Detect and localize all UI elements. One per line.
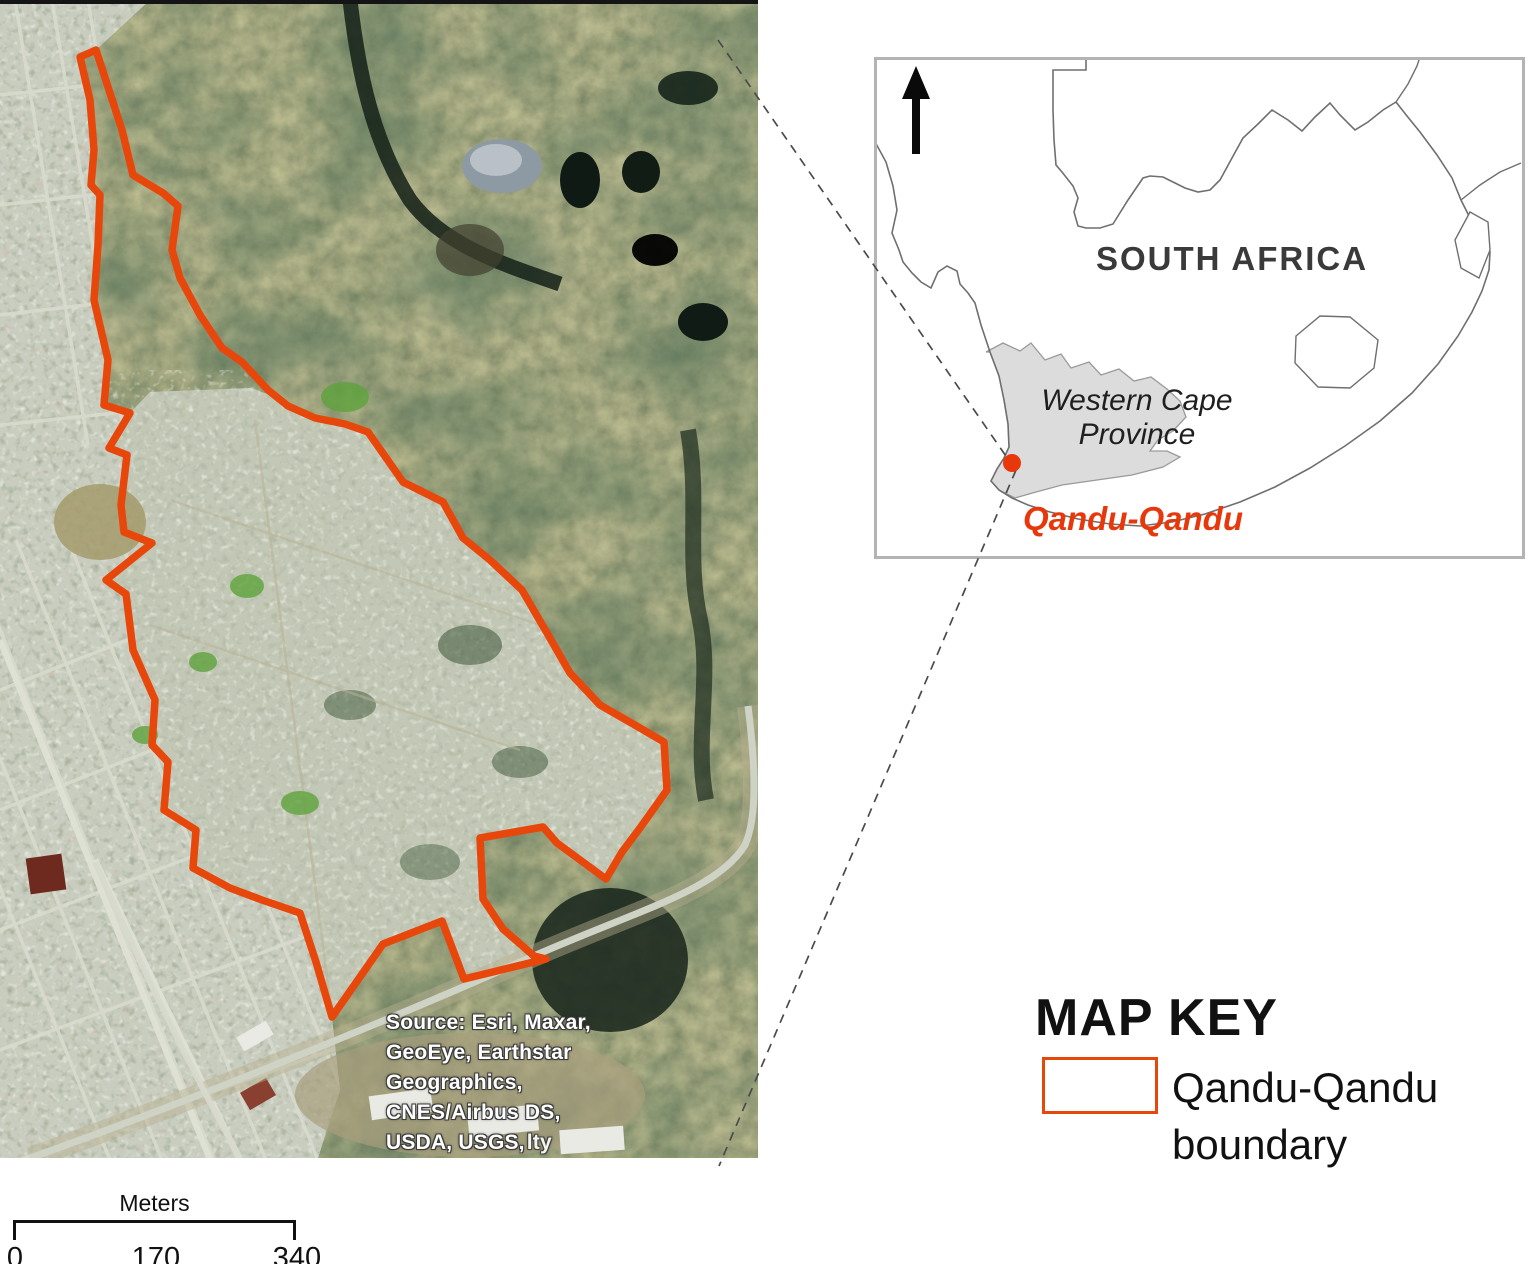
- pond-4: [678, 303, 728, 341]
- legend-row: Qandu-Qandu boundary: [1042, 1057, 1522, 1114]
- connector-line-bottom: [719, 470, 1016, 1166]
- source-line: Geographics,: [386, 1068, 626, 1098]
- source-line: USDA, USGS,lty: [386, 1128, 626, 1158]
- pond-3: [632, 234, 678, 266]
- red-roof-building: [26, 854, 67, 895]
- scale-tick-340: 340: [273, 1242, 321, 1264]
- source-line: CNES/Airbus DS,: [386, 1098, 626, 1128]
- lake-glint-highlight: [470, 144, 522, 176]
- brown-patch: [436, 224, 504, 276]
- scale-tick-0: 0: [7, 1242, 23, 1264]
- scale-bar-unit: Meters: [13, 1190, 296, 1217]
- north-arrow-icon: [902, 66, 930, 154]
- pond-2: [622, 151, 660, 193]
- source-attribution: Source: Esri, Maxar, GeoEye, Earthstar G…: [386, 1008, 626, 1158]
- sat-top-edge: [0, 0, 758, 4]
- pond-1: [560, 152, 600, 208]
- south-africa-map: SOUTH AFRICA Western Cape Province Qandu…: [877, 60, 1522, 556]
- figure-study-area-map: Source: Esri, Maxar, GeoEye, Earthstar G…: [0, 0, 1535, 1264]
- inset-locator-map: SOUTH AFRICA Western Cape Province Qandu…: [874, 57, 1525, 559]
- source-overlap-text: lty: [527, 1131, 552, 1154]
- province-label-line2: Province: [1079, 418, 1196, 451]
- satellite-image: [0, 0, 758, 1158]
- eswatini-shape: [1455, 212, 1490, 278]
- source-line: Source: Esri, Maxar,: [386, 1008, 626, 1038]
- boundary-legend-swatch: [1042, 1057, 1158, 1114]
- location-label: Qandu-Qandu: [1023, 500, 1243, 537]
- satellite-map: [0, 0, 758, 1158]
- province-label-line1: Western Cape: [1041, 384, 1232, 417]
- scale-bar-bracket: [13, 1220, 296, 1240]
- map-key-title: MAP KEY: [1035, 988, 1278, 1048]
- sand-field: [54, 484, 146, 560]
- south-africa-outline: [877, 60, 1490, 526]
- pond-5: [658, 71, 718, 105]
- source-line: GeoEye, Earthstar: [386, 1038, 626, 1068]
- scale-bar: Meters 0 170 340: [13, 1190, 296, 1264]
- boundary-legend-label: Qandu-Qandu boundary: [1172, 1059, 1522, 1116]
- neighbour-border-2: [1461, 163, 1521, 200]
- scale-bar-ticks: 0 170 340: [13, 1240, 296, 1264]
- scale-tick-170: 170: [132, 1242, 180, 1264]
- neighbour-border-1: [1396, 60, 1420, 102]
- country-label: SOUTH AFRICA: [1096, 240, 1368, 277]
- lesotho-enclave: [1295, 316, 1378, 388]
